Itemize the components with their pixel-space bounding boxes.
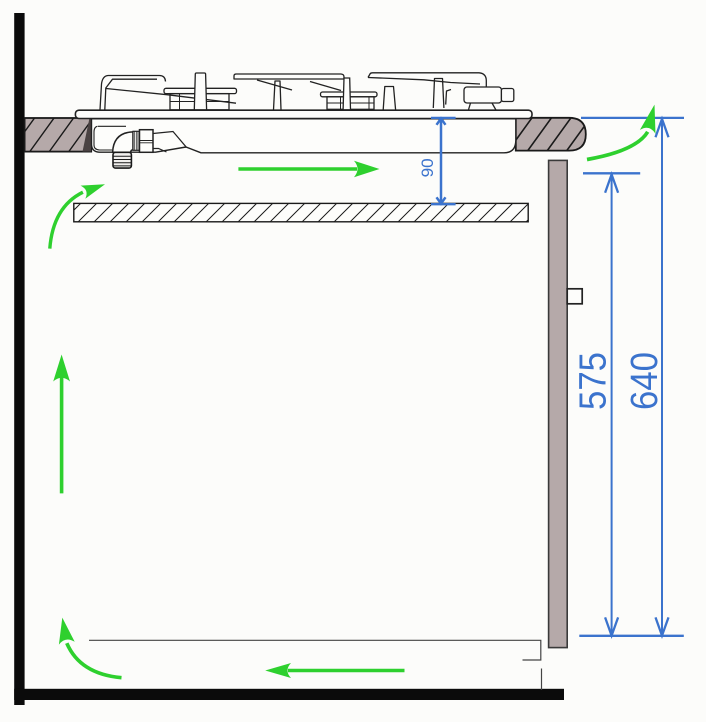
svg-text:640: 640 [624, 352, 666, 410]
svg-text:90: 90 [419, 158, 437, 177]
svg-text:575: 575 [573, 352, 615, 410]
